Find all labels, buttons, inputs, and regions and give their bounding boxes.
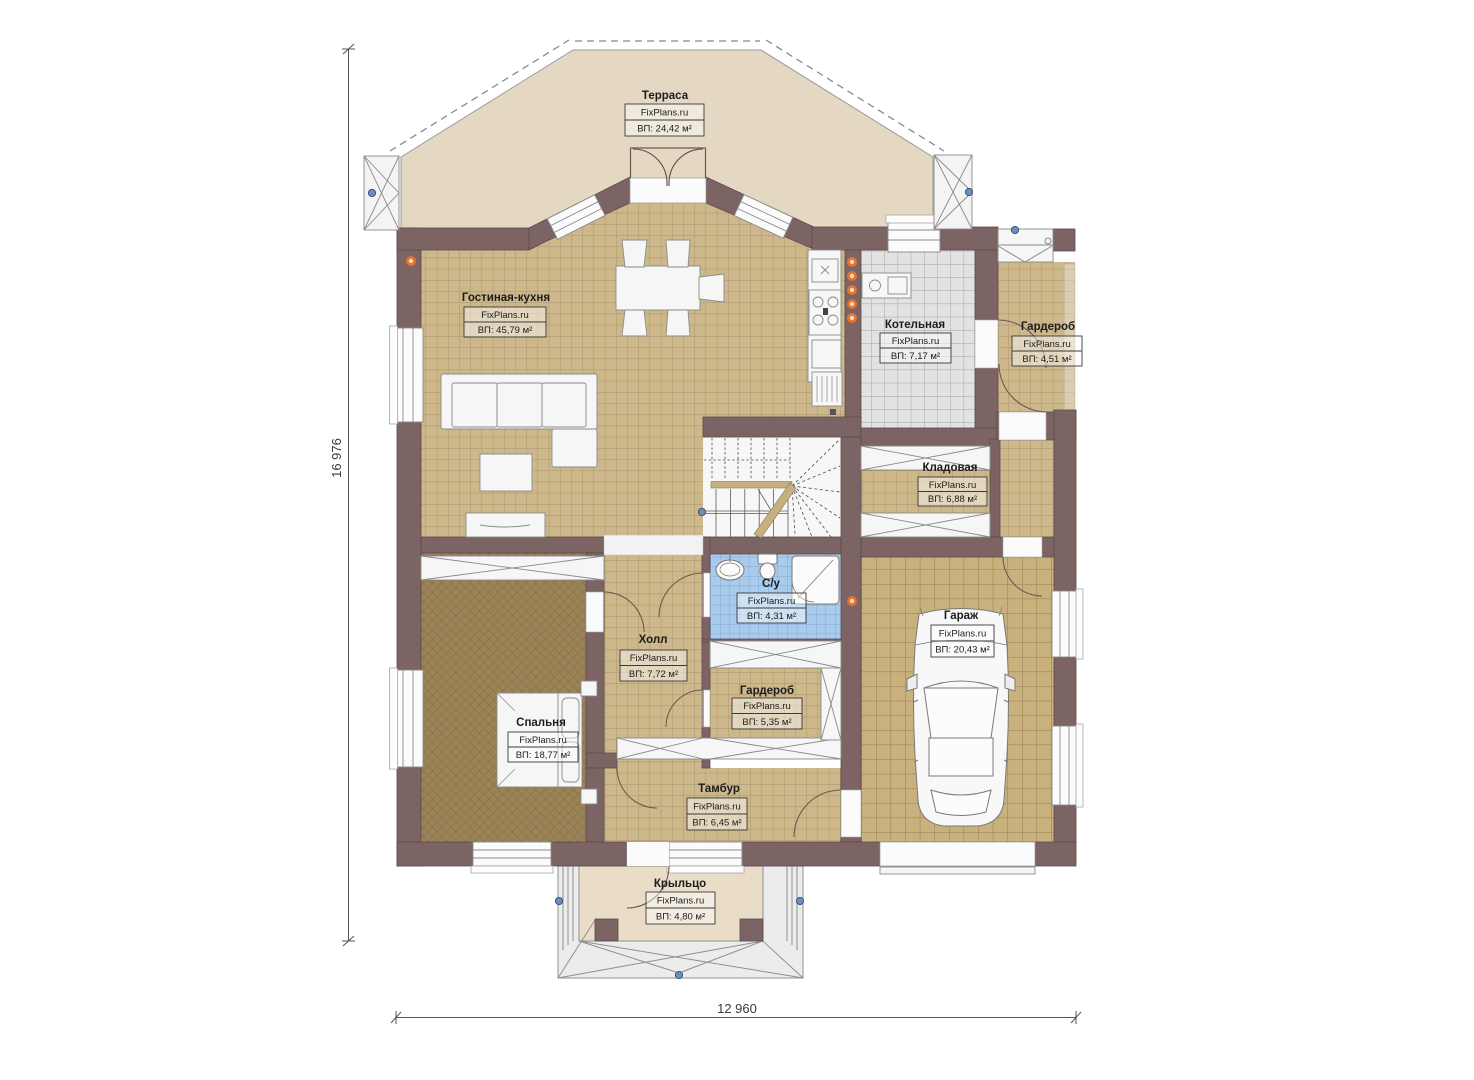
svg-text:16 976: 16 976 bbox=[329, 438, 344, 478]
svg-text:ВП: 4,80 м²: ВП: 4,80 м² bbox=[656, 912, 705, 923]
svg-text:FixPlans.ru: FixPlans.ru bbox=[630, 653, 678, 664]
svg-text:Гараж: Гараж bbox=[944, 610, 979, 622]
svg-text:Холл: Холл bbox=[639, 634, 668, 646]
svg-text:ВП: 45,79 м²: ВП: 45,79 м² bbox=[478, 325, 533, 336]
svg-text:Терраса: Терраса bbox=[642, 90, 689, 102]
svg-text:ВП: 6,88 м²: ВП: 6,88 м² bbox=[928, 494, 977, 505]
svg-text:Гостиная-кухня: Гостиная-кухня bbox=[462, 292, 550, 304]
svg-text:FixPlans.ru: FixPlans.ru bbox=[939, 629, 987, 640]
svg-text:ВП: 7,17 м²: ВП: 7,17 м² bbox=[891, 351, 940, 362]
svg-text:FixPlans.ru: FixPlans.ru bbox=[1023, 339, 1071, 350]
svg-text:Крыльцо: Крыльцо bbox=[654, 878, 706, 890]
svg-text:FixPlans.ru: FixPlans.ru bbox=[657, 896, 705, 907]
svg-text:Котельная: Котельная bbox=[885, 319, 945, 331]
svg-text:ВП: 7,72 м²: ВП: 7,72 м² bbox=[629, 669, 678, 680]
svg-text:FixPlans.ru: FixPlans.ru bbox=[519, 735, 567, 746]
svg-text:ВП: 6,45 м²: ВП: 6,45 м² bbox=[692, 818, 741, 829]
svg-text:ВП: 24,42 м²: ВП: 24,42 м² bbox=[637, 124, 692, 135]
svg-text:Гардероб: Гардероб bbox=[1021, 321, 1075, 333]
svg-text:ВП: 20,43 м²: ВП: 20,43 м² bbox=[935, 645, 990, 656]
svg-text:ВП: 4,51 м²: ВП: 4,51 м² bbox=[1022, 354, 1071, 365]
svg-text:FixPlans.ru: FixPlans.ru bbox=[892, 336, 940, 347]
svg-text:ВП: 18,77 м²: ВП: 18,77 м² bbox=[516, 750, 571, 761]
svg-text:FixPlans.ru: FixPlans.ru bbox=[748, 596, 796, 607]
svg-text:FixPlans.ru: FixPlans.ru bbox=[481, 310, 529, 321]
svg-text:ВП: 4,31 м²: ВП: 4,31 м² bbox=[747, 611, 796, 622]
svg-text:FixPlans.ru: FixPlans.ru bbox=[641, 108, 689, 119]
svg-text:ВП: 5,35 м²: ВП: 5,35 м² bbox=[742, 717, 791, 728]
svg-text:12 960: 12 960 bbox=[717, 1001, 757, 1016]
svg-text:Гардероб: Гардероб bbox=[740, 685, 794, 697]
svg-text:FixPlans.ru: FixPlans.ru bbox=[693, 802, 741, 813]
svg-text:Кладовая: Кладовая bbox=[922, 462, 977, 474]
svg-text:FixPlans.ru: FixPlans.ru bbox=[743, 701, 791, 712]
svg-text:С/у: С/у bbox=[762, 578, 781, 590]
svg-text:FixPlans.ru: FixPlans.ru bbox=[929, 480, 977, 491]
svg-text:Тамбур: Тамбур bbox=[698, 783, 740, 795]
svg-text:Спальня: Спальня bbox=[516, 717, 566, 729]
